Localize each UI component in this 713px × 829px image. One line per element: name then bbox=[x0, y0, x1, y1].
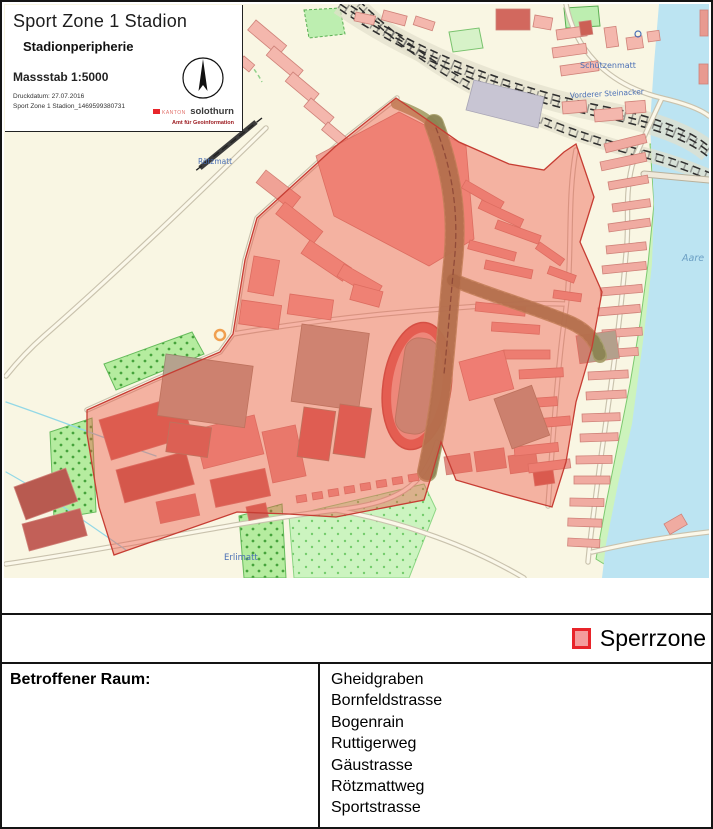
kanton-solothurn-logo: KANTON solothurn Amt für Geoinformation bbox=[153, 101, 234, 126]
logo-kanton-text: KANTON bbox=[162, 110, 186, 116]
street-item: Rötzmattweg bbox=[331, 776, 711, 797]
affected-area-table: Betroffener Raum: Gheidgraben Bornfeldst… bbox=[2, 664, 711, 827]
street-item: Gheidgraben bbox=[331, 669, 711, 690]
street-item: Bogenrain bbox=[331, 712, 711, 733]
document-page: Schützenmatt Vorderer Steinacker Rötzmat… bbox=[0, 0, 713, 829]
street-item: Bornfeldstrasse bbox=[331, 690, 711, 711]
affected-area-header-cell: Betroffener Raum: bbox=[2, 664, 320, 827]
map-info-box: Sport Zone 1 Stadion Stadionperipherie M… bbox=[5, 5, 243, 132]
street-item: Ruttigerweg bbox=[331, 733, 711, 754]
affected-area-streets-cell: Gheidgraben Bornfeldstrasse Bogenrain Ru… bbox=[320, 664, 711, 827]
label-aare: Aare bbox=[681, 253, 704, 264]
solothurn-flag-icon bbox=[153, 109, 160, 114]
logo-solothurn-text: solothurn bbox=[190, 106, 234, 117]
north-arrow-icon bbox=[180, 55, 226, 106]
label-erlimatt: Erlimatt bbox=[224, 553, 258, 563]
label-schuetzenmatt: Schützenmatt bbox=[580, 61, 636, 70]
street-item: Gäustrasse bbox=[331, 755, 711, 776]
legend-row: Sperrzone bbox=[2, 615, 711, 664]
logo-department-text: Amt für Geoinformation bbox=[153, 120, 234, 126]
street-item: Sportstrasse bbox=[331, 797, 711, 818]
sperrzone-swatch bbox=[572, 628, 591, 649]
affected-area-label: Betroffener Raum: bbox=[10, 671, 150, 688]
map-section: Schützenmatt Vorderer Steinacker Rötzmat… bbox=[2, 2, 711, 615]
label-roetzmatt: Rötzmatt bbox=[198, 157, 232, 166]
sperrzone-label: Sperrzone bbox=[600, 625, 706, 652]
map-title: Sport Zone 1 Stadion bbox=[13, 11, 234, 32]
map-subtitle: Stadionperipherie bbox=[23, 39, 234, 54]
